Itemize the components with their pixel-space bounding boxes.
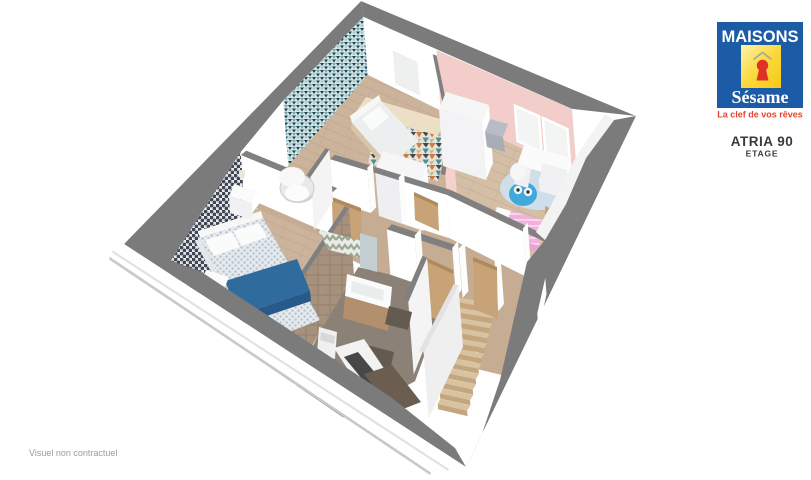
svg-text:La clef de vos rêves: La clef de vos rêves — [717, 110, 803, 120]
svg-text:Sésame: Sésame — [732, 87, 789, 107]
svg-text:ETAGE: ETAGE — [746, 149, 779, 159]
svg-text:MAISONS: MAISONS — [721, 28, 798, 46]
svg-text:ATRIA 90: ATRIA 90 — [731, 134, 794, 149]
svg-text:Visuel non contractuel: Visuel non contractuel — [29, 448, 117, 458]
